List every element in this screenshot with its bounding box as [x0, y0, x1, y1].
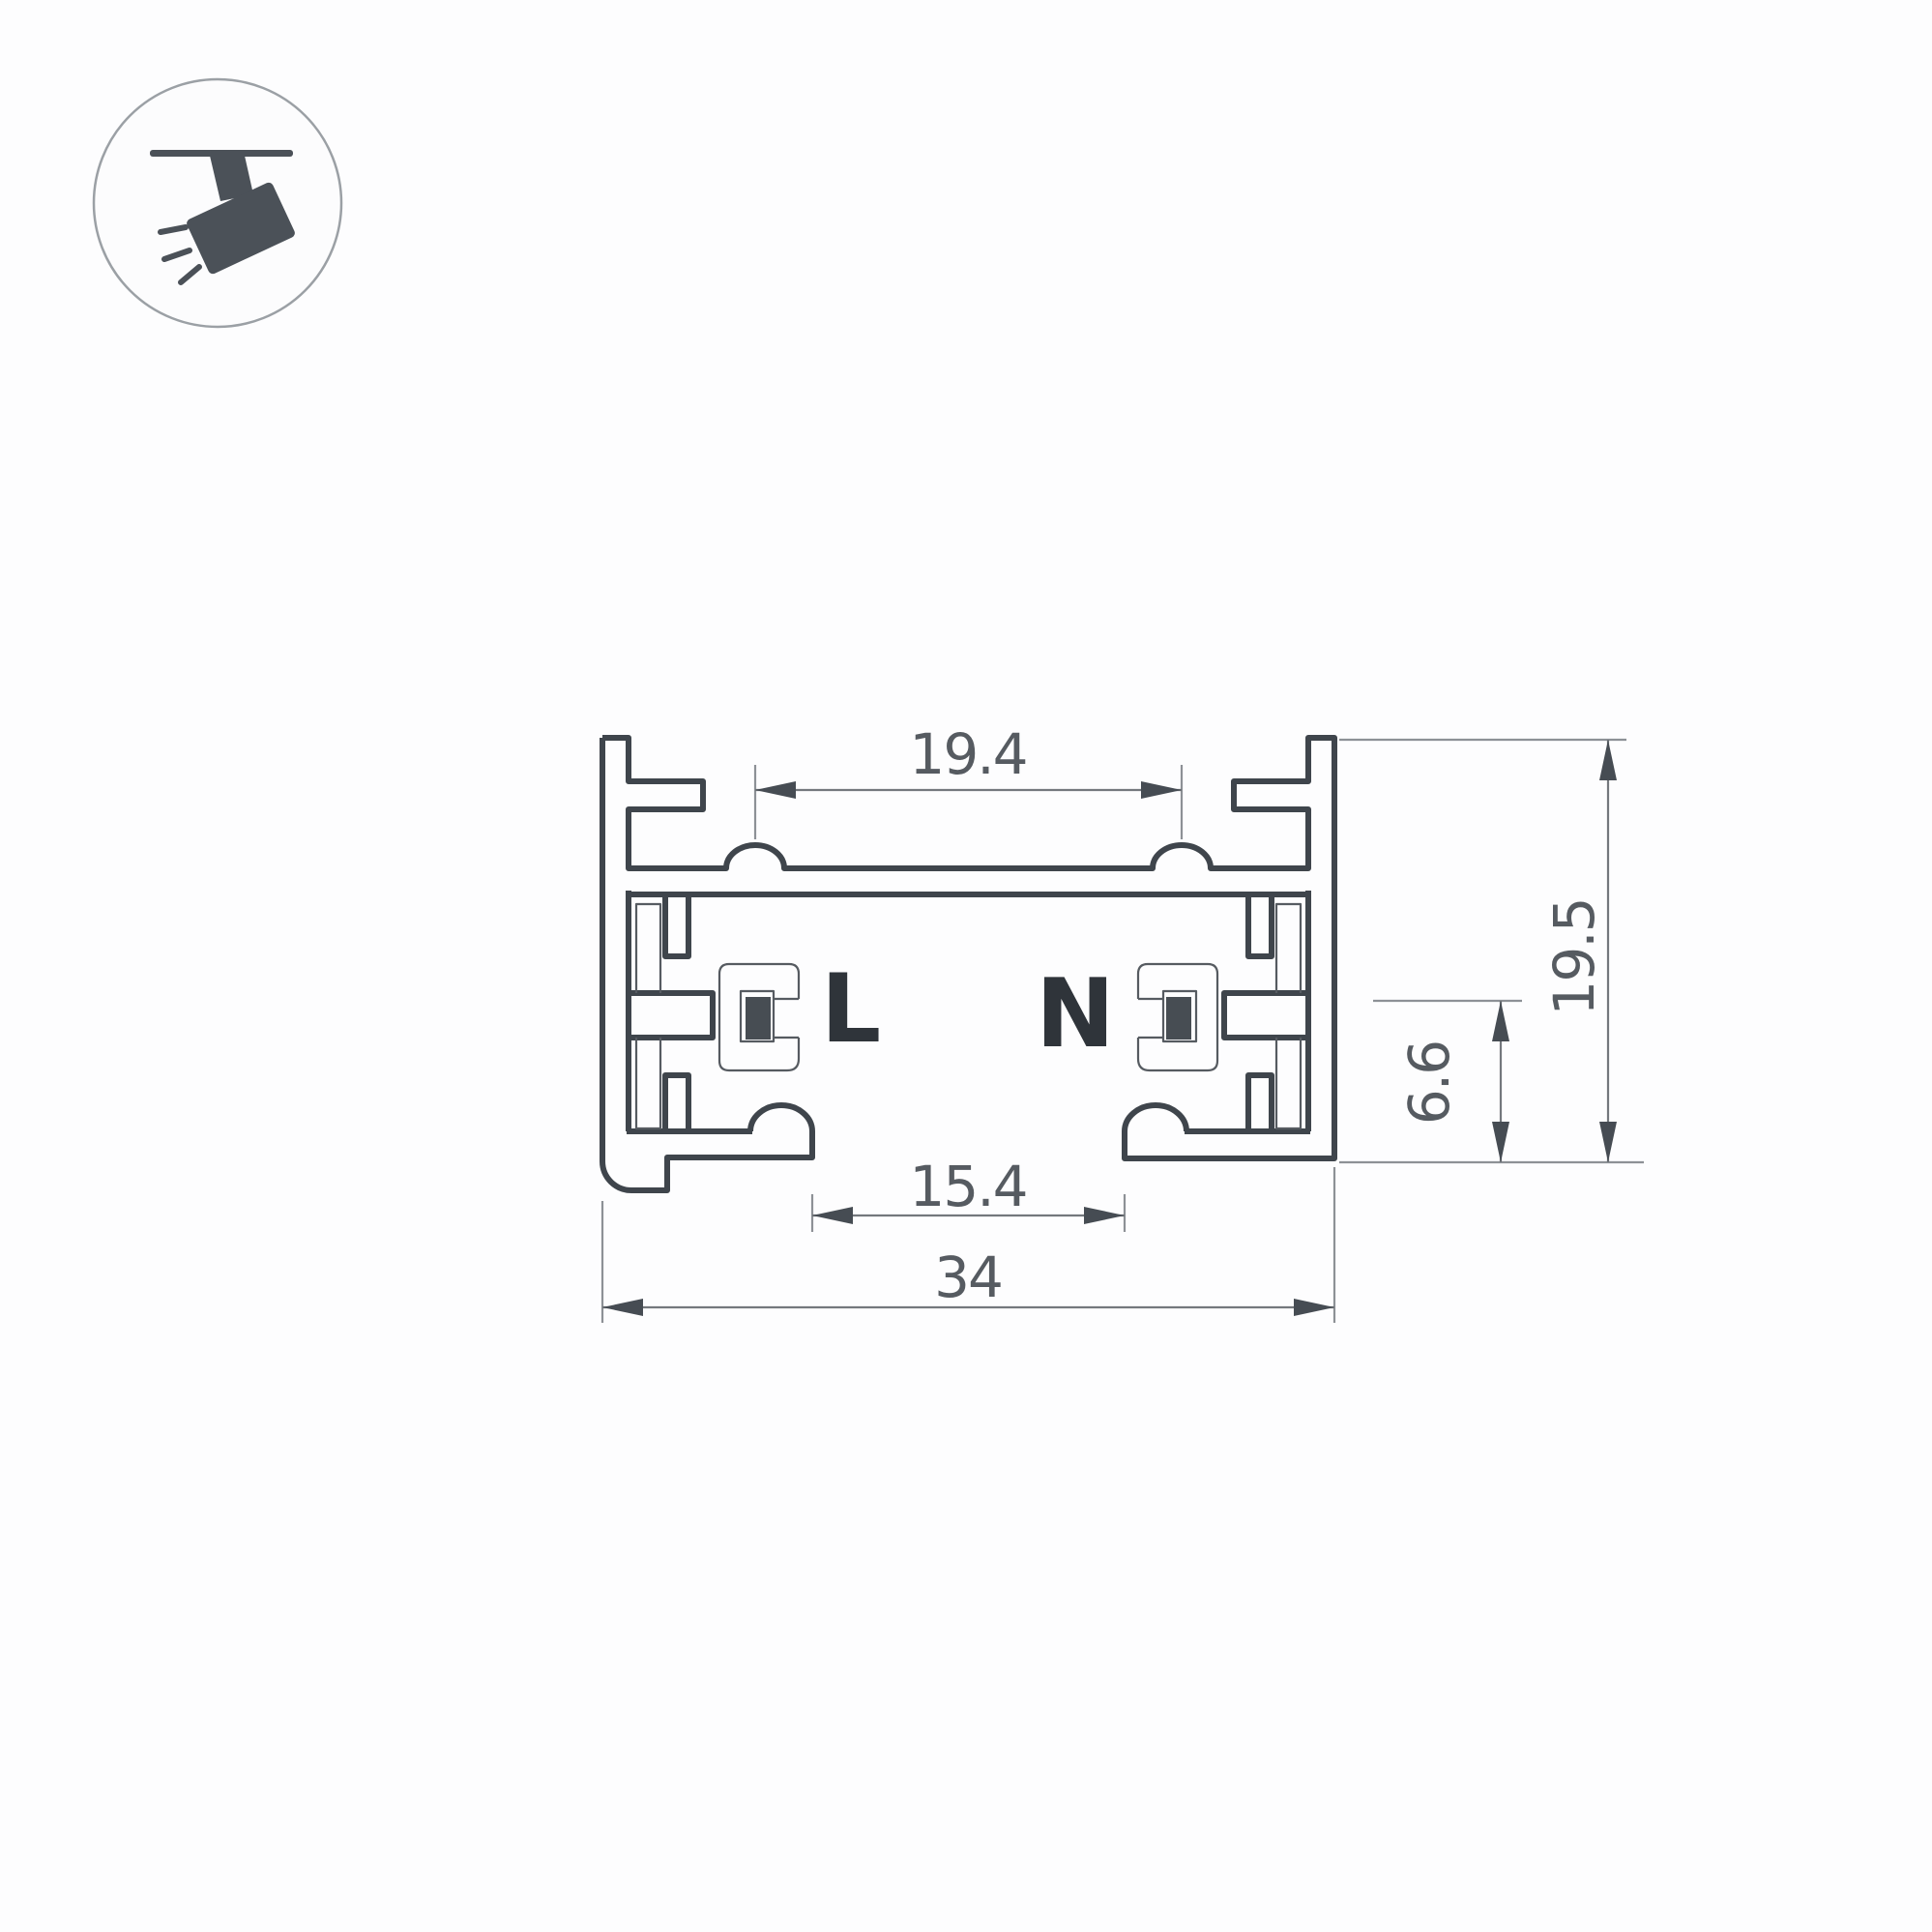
dimension-value: 19.4 — [909, 721, 1026, 787]
profile-outer-outline — [602, 738, 1334, 1190]
page: L N 19.4 15.4 34 19 — [0, 0, 1932, 1932]
icon-ceiling-bar — [150, 150, 293, 157]
dimension-opening-width: 15.4 — [812, 1154, 1125, 1232]
label-live-conductor: L — [821, 954, 881, 1065]
dimension-value: 34 — [934, 1244, 1002, 1310]
chamber-left — [627, 891, 969, 1131]
icon-circle — [94, 79, 341, 327]
chamber-right — [968, 891, 1310, 1131]
dimension-value: 19.5 — [1541, 898, 1607, 1015]
label-neutral-conductor: N — [1036, 959, 1115, 1069]
track-spotlight-icon — [94, 79, 341, 327]
dimension-contact-height: 6.6 — [1373, 1001, 1522, 1162]
technical-drawing: L N 19.4 15.4 34 19 — [0, 0, 1932, 1932]
dimension-overall-height: 19.5 — [1339, 740, 1644, 1162]
dimension-slot-width: 19.4 — [755, 721, 1182, 839]
profile-cross-section: L N — [602, 738, 1334, 1190]
dimension-value: 15.4 — [909, 1154, 1026, 1219]
dimension-value: 6.6 — [1396, 1041, 1462, 1125]
